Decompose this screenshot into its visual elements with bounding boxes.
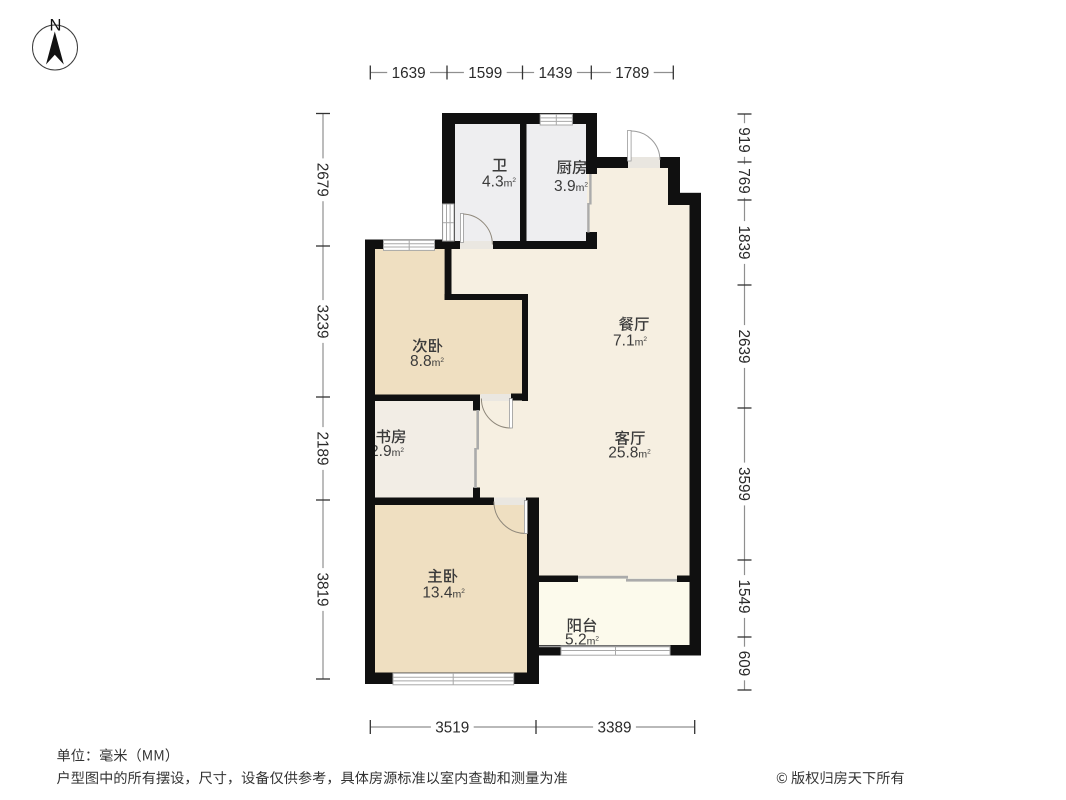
svg-text:1549: 1549 — [735, 579, 752, 613]
svg-text:3389: 3389 — [597, 719, 631, 736]
svg-text:1789: 1789 — [615, 65, 649, 82]
svg-text:2639: 2639 — [735, 329, 752, 363]
svg-text:3519: 3519 — [435, 719, 469, 736]
svg-text:3819: 3819 — [313, 572, 330, 606]
svg-text:2679: 2679 — [313, 163, 330, 197]
svg-text:N: N — [50, 17, 62, 35]
svg-text:919: 919 — [735, 127, 752, 153]
svg-text:1839: 1839 — [735, 225, 752, 259]
svg-text:609: 609 — [735, 651, 752, 677]
svg-text:2189: 2189 — [313, 431, 330, 465]
svg-text:1439: 1439 — [538, 65, 572, 82]
svg-text:3239: 3239 — [313, 304, 330, 338]
svg-text:3599: 3599 — [735, 467, 752, 501]
svg-text:769: 769 — [735, 168, 752, 194]
svg-text:1599: 1599 — [468, 65, 502, 82]
svg-text:1639: 1639 — [392, 65, 426, 82]
